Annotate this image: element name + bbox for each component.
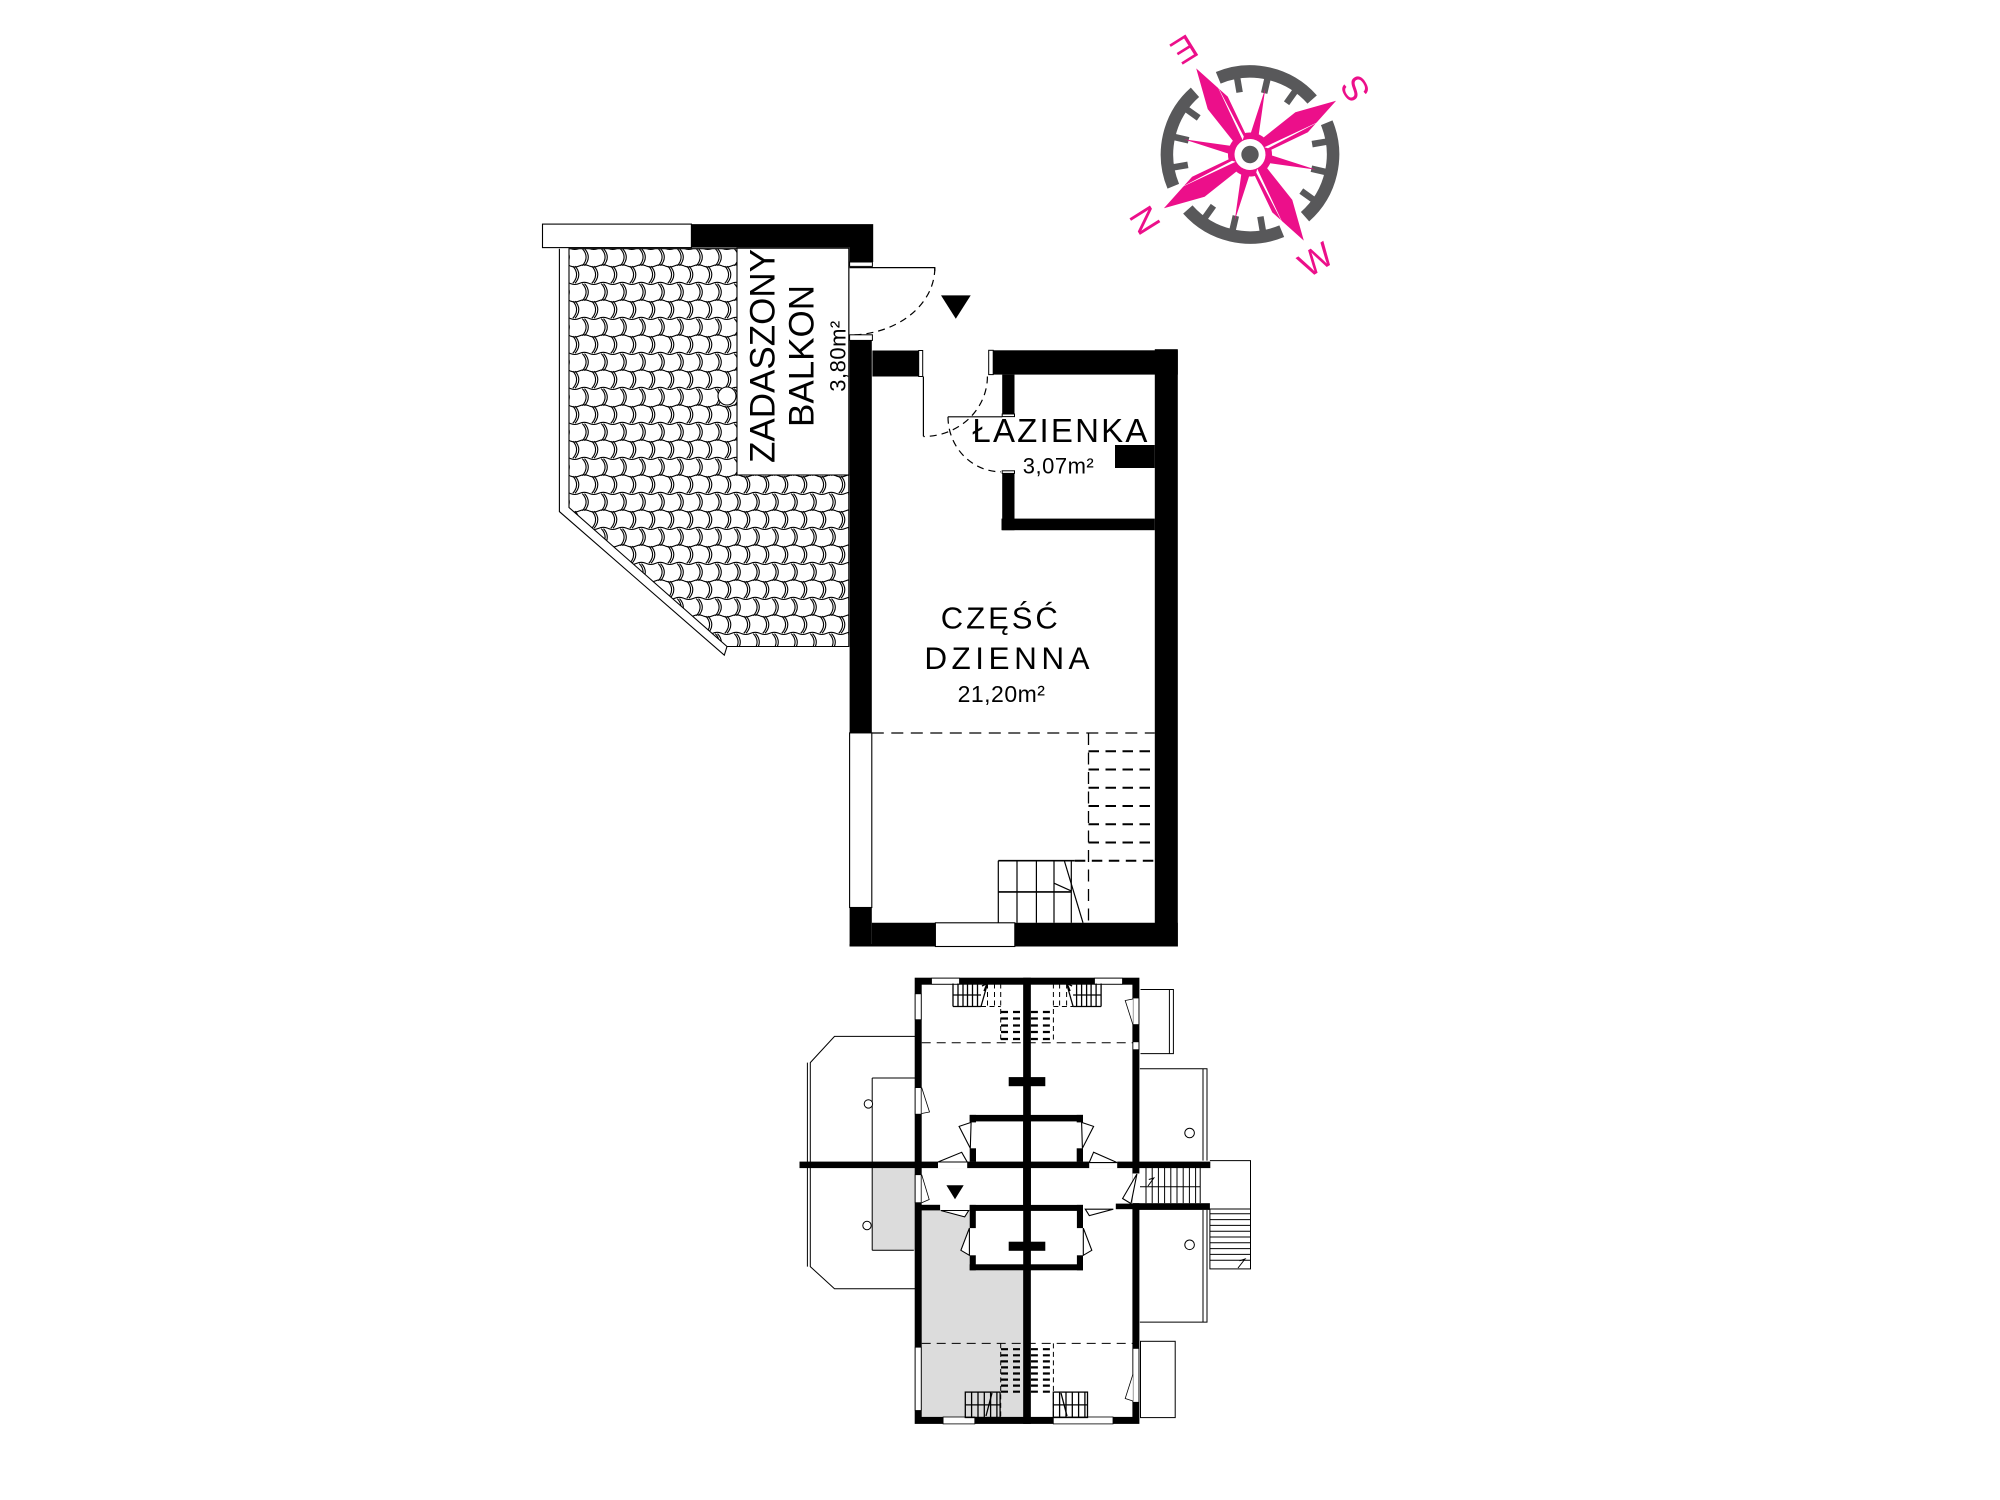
svg-text:21,20m²: 21,20m² (958, 681, 1046, 707)
svg-text:E: E (1164, 26, 1204, 71)
svg-text:W: W (1292, 235, 1341, 286)
svg-text:BALKON: BALKON (783, 285, 822, 427)
svg-text:3,07m²: 3,07m² (1023, 454, 1094, 479)
svg-text:S: S (1333, 68, 1378, 108)
svg-text:N: N (1121, 199, 1167, 241)
svg-text:ZADASZONY: ZADASZONY (743, 249, 782, 463)
svg-text:3,80m²: 3,80m² (825, 320, 850, 391)
svg-text:ŁAZIENKA: ŁAZIENKA (972, 412, 1149, 449)
svg-text:DZIENNA: DZIENNA (924, 640, 1094, 676)
svg-text:CZĘŚĆ: CZĘŚĆ (941, 600, 1061, 636)
